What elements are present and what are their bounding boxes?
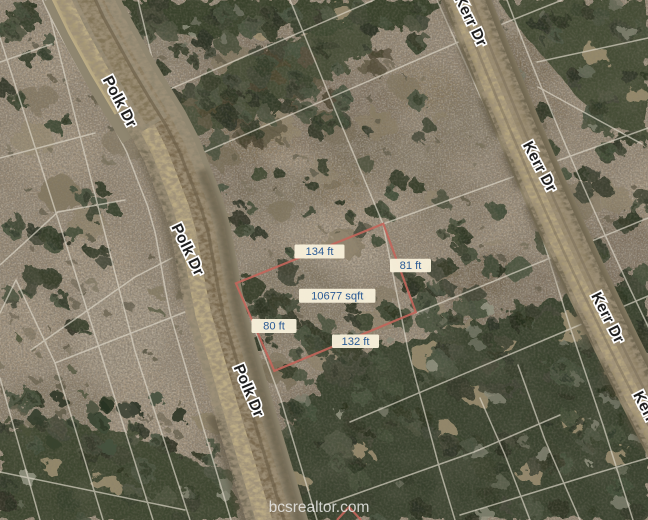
svg-text:132 ft: 132 ft xyxy=(342,336,371,348)
svg-text:10677 sqft: 10677 sqft xyxy=(311,290,364,302)
svg-text:134 ft: 134 ft xyxy=(306,246,335,258)
svg-text:bcsrealtor.com: bcsrealtor.com xyxy=(269,499,370,516)
svg-text:81 ft: 81 ft xyxy=(400,260,423,272)
svg-text:80 ft: 80 ft xyxy=(263,320,286,332)
